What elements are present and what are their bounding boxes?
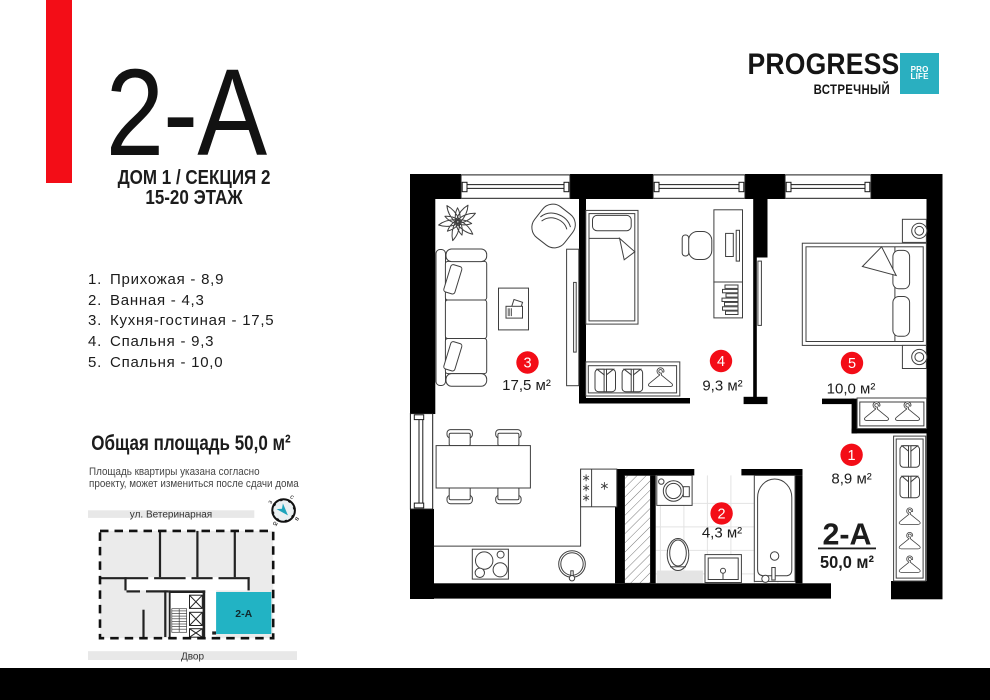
svg-text:5: 5: [848, 356, 856, 372]
svg-text:ул. Ветеринарная: ул. Ветеринарная: [130, 510, 212, 521]
svg-text:2: 2: [718, 507, 726, 523]
svg-text:4,3 м²: 4,3 м²: [702, 525, 742, 542]
svg-text:9,3 м²: 9,3 м²: [702, 378, 742, 395]
svg-text:50,0 м²: 50,0 м²: [820, 552, 874, 572]
svg-text:10,0 м²: 10,0 м²: [827, 381, 876, 398]
svg-text:2-А: 2-А: [823, 517, 872, 552]
svg-text:4: 4: [717, 354, 725, 370]
svg-text:Двор: Двор: [181, 652, 205, 663]
svg-text:2-А: 2-А: [235, 608, 252, 620]
svg-text:3: 3: [523, 356, 531, 372]
svg-text:1: 1: [848, 448, 856, 464]
svg-text:8,9 м²: 8,9 м²: [831, 471, 871, 488]
svg-text:з: з: [267, 499, 275, 505]
svg-text:17,5 м²: 17,5 м²: [502, 377, 551, 394]
